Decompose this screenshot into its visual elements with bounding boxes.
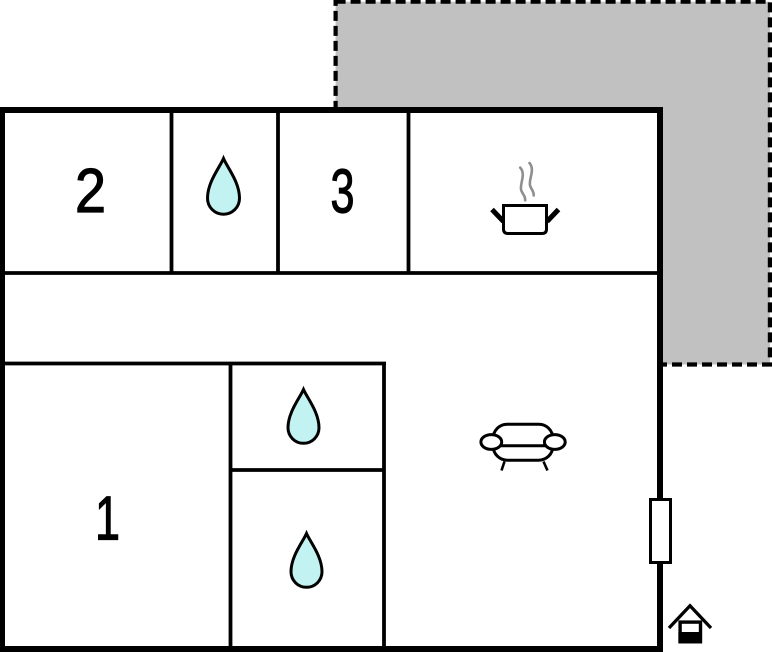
svg-text:1: 1	[95, 485, 120, 554]
svg-text:2: 2	[75, 157, 106, 226]
svg-text:3: 3	[331, 158, 355, 227]
